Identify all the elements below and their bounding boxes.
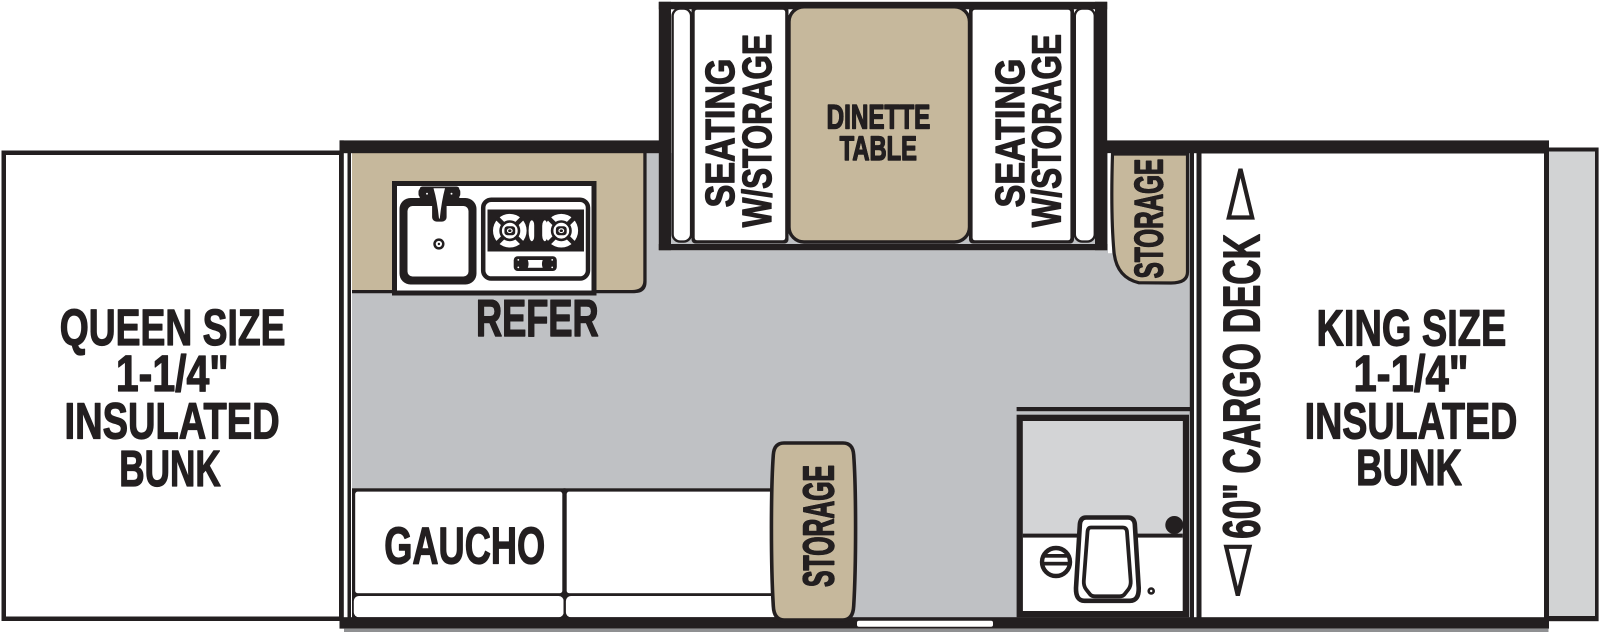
svg-text:BUNK: BUNK (1356, 439, 1462, 496)
svg-text:REFER: REFER (476, 290, 599, 348)
svg-text:W/STORAGE: W/STORAGE (1024, 34, 1070, 227)
svg-text:STORAGE: STORAGE (1127, 159, 1171, 279)
svg-text:W/STORAGE: W/STORAGE (734, 34, 780, 227)
svg-text:60" CARGO DECK: 60" CARGO DECK (1213, 234, 1271, 539)
svg-text:STORAGE: STORAGE (796, 465, 844, 587)
svg-text:GAUCHO: GAUCHO (384, 518, 545, 576)
svg-text:BUNK: BUNK (119, 440, 221, 497)
svg-text:TABLE: TABLE (840, 130, 917, 168)
